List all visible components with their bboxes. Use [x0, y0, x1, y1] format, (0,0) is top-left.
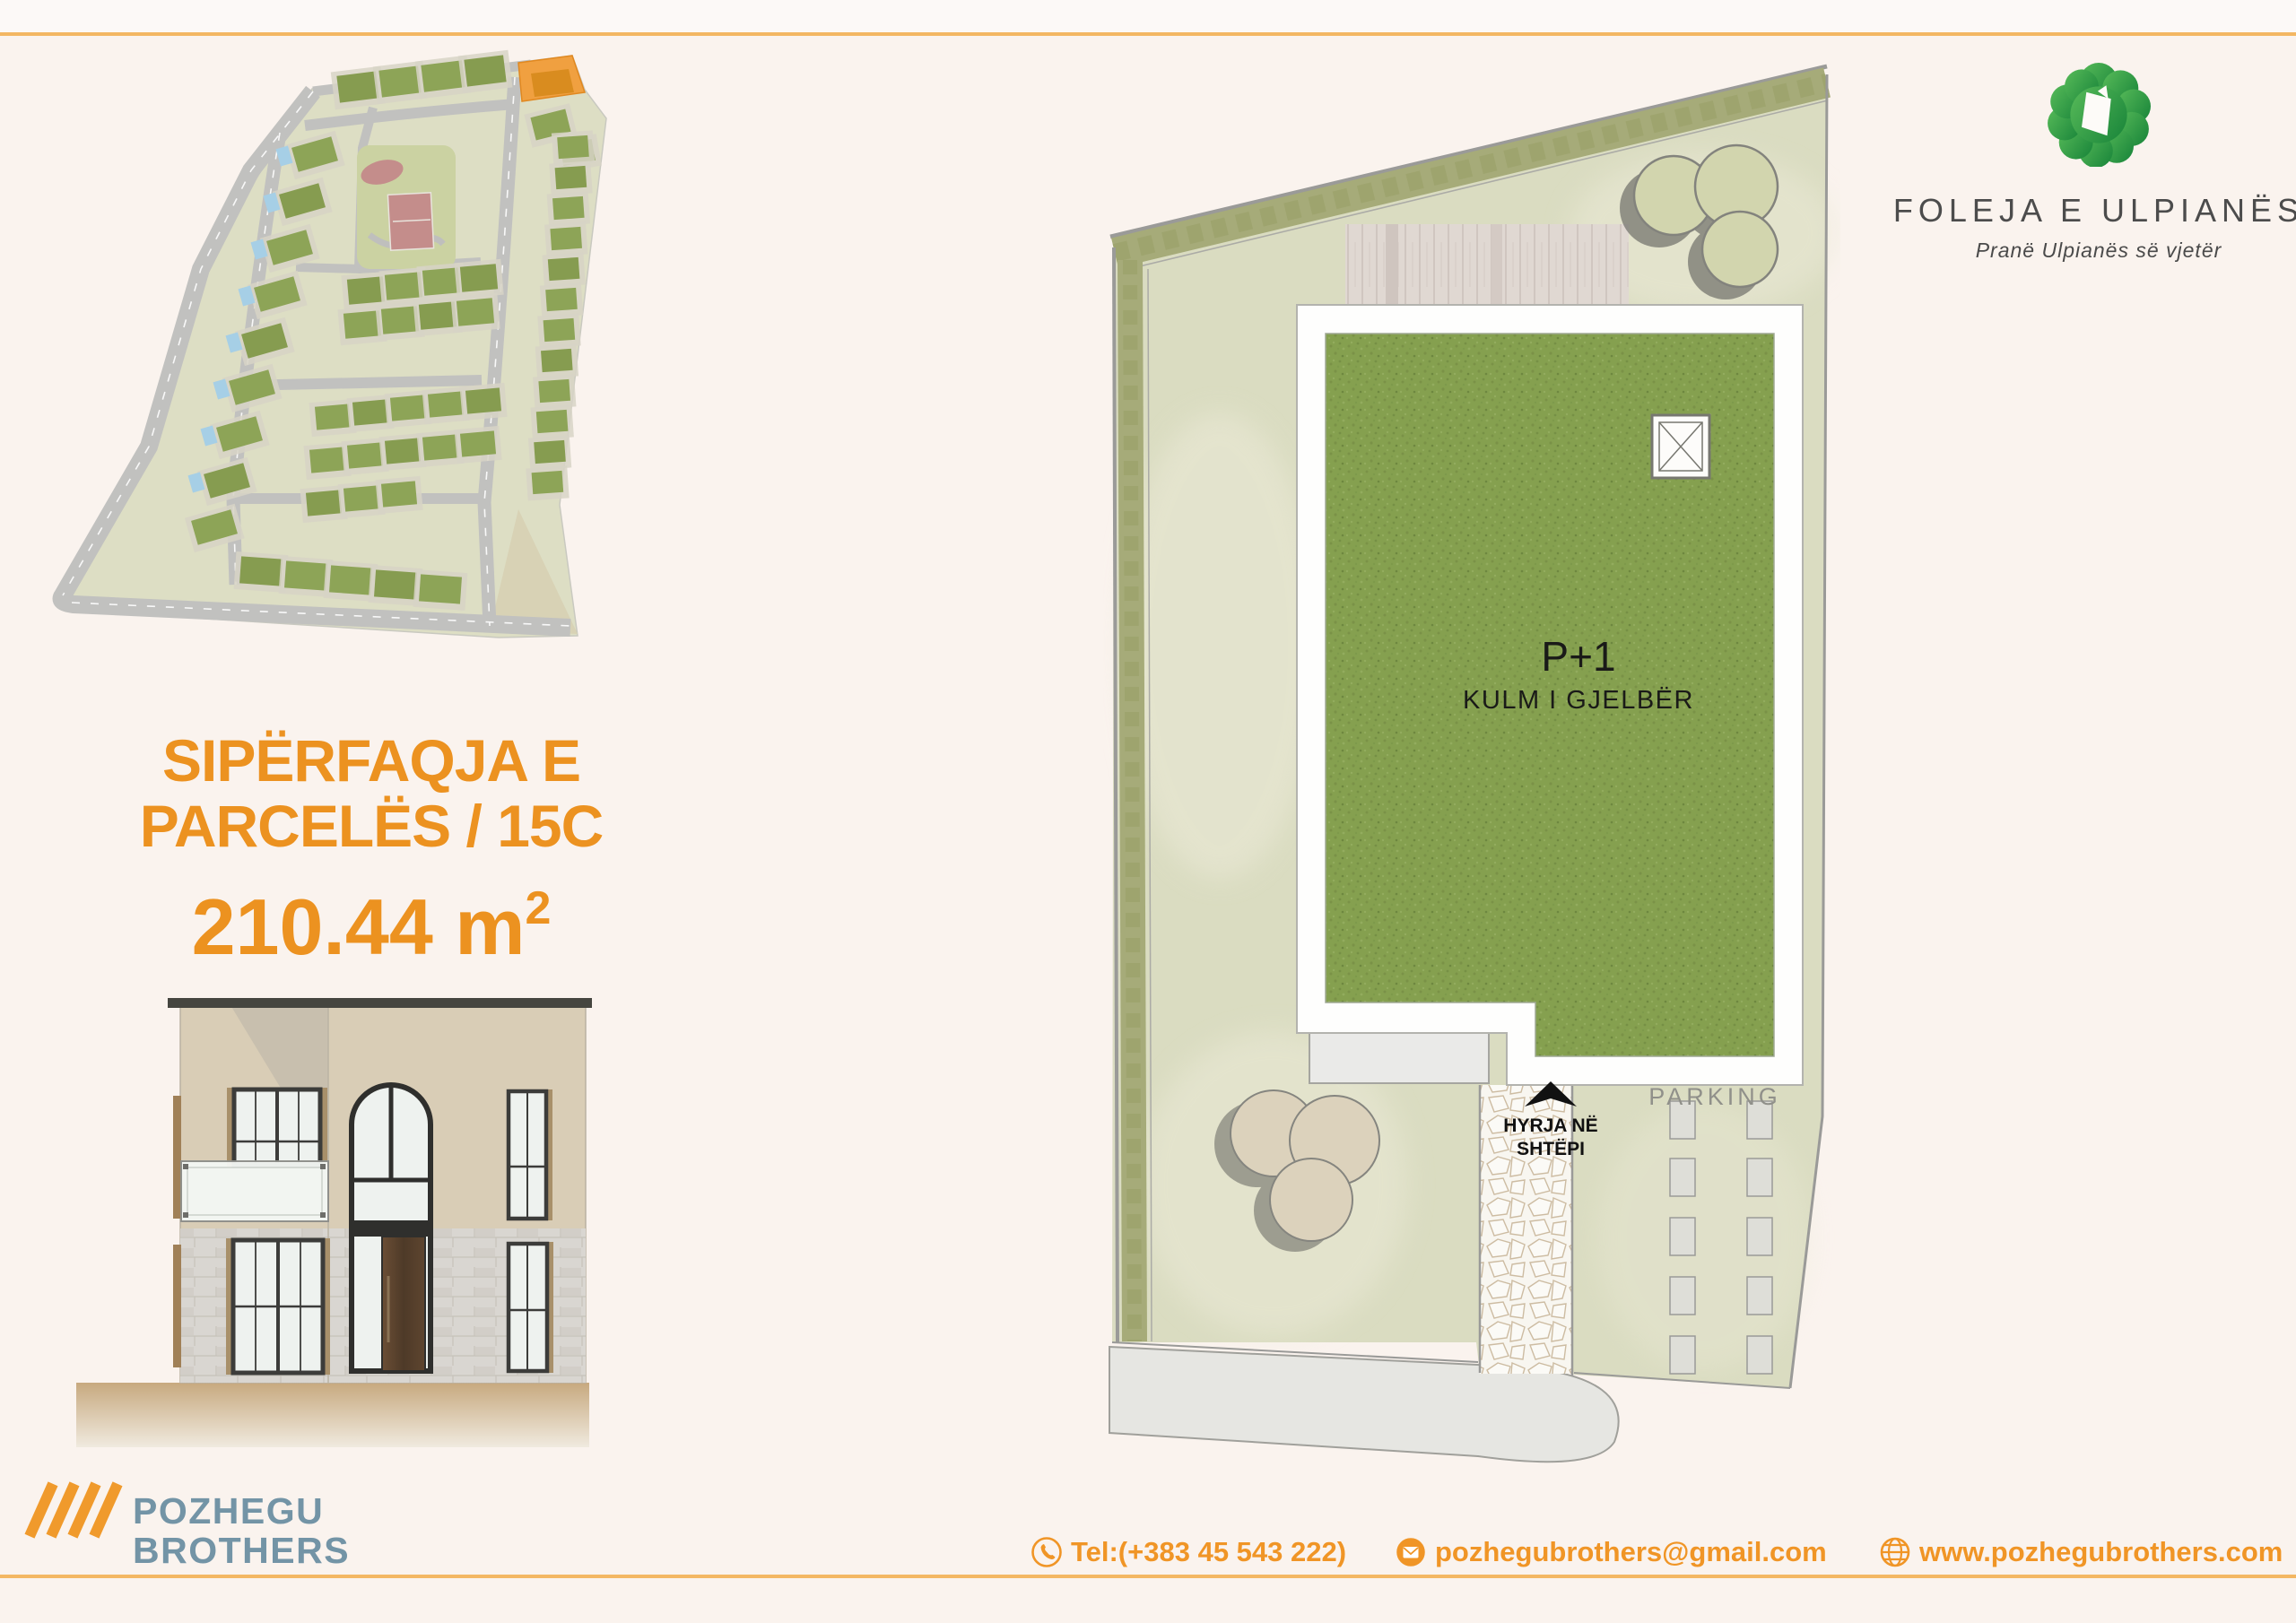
- elevation-roof: [168, 998, 592, 1008]
- masterplan-house: [550, 227, 582, 250]
- masterplan-house: [352, 399, 388, 425]
- masterplan-house: [544, 318, 576, 342]
- contact-email: pozhegubrothers@gmail.com: [1394, 1535, 1827, 1569]
- masterplan-house: [284, 560, 327, 590]
- parking-space-marker: [1747, 1218, 1772, 1255]
- masterplan-house: [548, 257, 580, 281]
- masterplan-map: [27, 27, 655, 708]
- masterplan-house: [336, 71, 378, 102]
- masterplan-house: [344, 485, 379, 511]
- email-text: pozhegubrothers@gmail.com: [1435, 1536, 1827, 1568]
- masterplan-house: [344, 310, 381, 338]
- site-plan: PARKING P+1 KULM I GJELBËR: [1103, 49, 1840, 1538]
- masterplan-house: [552, 196, 585, 220]
- arched-entrance: [352, 1085, 430, 1371]
- phone-icon: [1030, 1535, 1064, 1569]
- parking-label: PARKING: [1648, 1083, 1781, 1110]
- skylight: [1652, 415, 1709, 478]
- brochure-page: FOLEJA E ULPIANËS Pranë Ulpianës së vjet…: [0, 0, 2296, 1623]
- masterplan-house: [381, 306, 419, 334]
- company-name-line2: BROTHERS: [133, 1530, 350, 1572]
- entrance-label-line2: SHTËPI: [1517, 1139, 1585, 1159]
- green-roof-label: KULM I GJELBËR: [1463, 686, 1694, 715]
- brand-title: FOLEJA E ULPIANËS: [1892, 192, 2296, 230]
- masterplan-house: [422, 434, 458, 460]
- masterplan-house: [239, 556, 283, 586]
- building: P+1 KULM I GJELBËR: [1297, 305, 1803, 1085]
- masterplan-house: [422, 267, 460, 295]
- masterplan-house: [536, 410, 569, 433]
- masterplan-house: [347, 442, 383, 468]
- masterplan-park: [357, 145, 456, 269]
- upper-left-window: [227, 1088, 327, 1167]
- envelope-icon: [1394, 1535, 1428, 1569]
- masterplan-house: [390, 395, 426, 421]
- upper-right-window: [509, 1089, 552, 1220]
- masterplan-house: [428, 391, 464, 417]
- masterplan-house: [381, 481, 417, 507]
- brand-block: FOLEJA E ULPIANËS Pranë Ulpianës së vjet…: [1892, 63, 2296, 263]
- masterplan-house: [457, 298, 494, 325]
- bottom-accent-line: [0, 1575, 2296, 1578]
- masterplan-house: [464, 55, 506, 86]
- parking-space-marker: [1670, 1336, 1695, 1374]
- balcony: [181, 1161, 328, 1221]
- parking-space-marker: [1747, 1277, 1772, 1315]
- contact-website: www.pozhegubrothers.com: [1878, 1535, 2283, 1569]
- house-elevation: [76, 991, 592, 1448]
- entrance-label-line1: HYRJA NË: [1503, 1115, 1597, 1136]
- deck-plank: [1492, 224, 1502, 305]
- green-clover-parcel-icon: [2047, 63, 2151, 167]
- masterplan-house: [555, 166, 587, 189]
- terrace: [1309, 1033, 1489, 1083]
- masterplan-house: [545, 288, 578, 311]
- masterplan-house: [329, 565, 372, 595]
- masterplan-house: [385, 438, 421, 464]
- parking-space-marker: [1747, 1159, 1772, 1196]
- parcel-area: 210.44 m2: [79, 881, 664, 973]
- masterplan-house: [374, 569, 417, 599]
- masterplan-house: [315, 404, 351, 430]
- masterplan-house: [541, 349, 573, 372]
- parking-space-marker: [1670, 1277, 1695, 1315]
- masterplan-house: [347, 276, 385, 304]
- parcel-info: SIPËRFAQJA E PARCELËS / 15C 210.44 m2: [79, 728, 664, 973]
- area-superscript: 2: [525, 882, 551, 934]
- masterplan-house: [378, 65, 421, 97]
- website-text: www.pozhegubrothers.com: [1919, 1536, 2283, 1568]
- masterplan-house: [460, 430, 496, 456]
- masterplan-house: [465, 387, 501, 413]
- floors-label: P+1: [1541, 633, 1615, 680]
- lower-left-window: [226, 1238, 330, 1375]
- parcel-title-line2: PARCELËS / 15C: [79, 794, 664, 859]
- masterplan-house: [306, 490, 342, 516]
- globe-icon: [1878, 1535, 1912, 1569]
- contact-phone: Tel:(+383 45 543 222): [1030, 1535, 1346, 1569]
- masterplan-house: [460, 264, 498, 291]
- masterplan-house: [532, 471, 564, 494]
- masterplan-house: [385, 272, 422, 299]
- elevation-ground: [76, 1383, 589, 1447]
- parking-space-marker: [1670, 1218, 1695, 1255]
- company-name-line1: POZHEGU: [133, 1490, 324, 1532]
- masterplan-house: [421, 60, 465, 91]
- masterplan-house: [419, 301, 457, 329]
- parking-space-marker: [1747, 1336, 1772, 1374]
- masterplan-house: [538, 379, 570, 403]
- parcel-title-line1: SIPËRFAQJA E: [79, 728, 664, 794]
- masterplan-house: [419, 574, 462, 603]
- phone-text: Tel:(+383 45 543 222): [1071, 1536, 1346, 1568]
- deck-plank: [1386, 224, 1398, 305]
- parking-space-marker: [1670, 1159, 1695, 1196]
- masterplan-house: [557, 135, 589, 159]
- masterplan-house: [309, 447, 345, 473]
- brand-tagline: Pranë Ulpianës së vjetër: [1892, 239, 2296, 263]
- masterplan-house: [534, 440, 566, 464]
- lower-right-window: [509, 1242, 553, 1373]
